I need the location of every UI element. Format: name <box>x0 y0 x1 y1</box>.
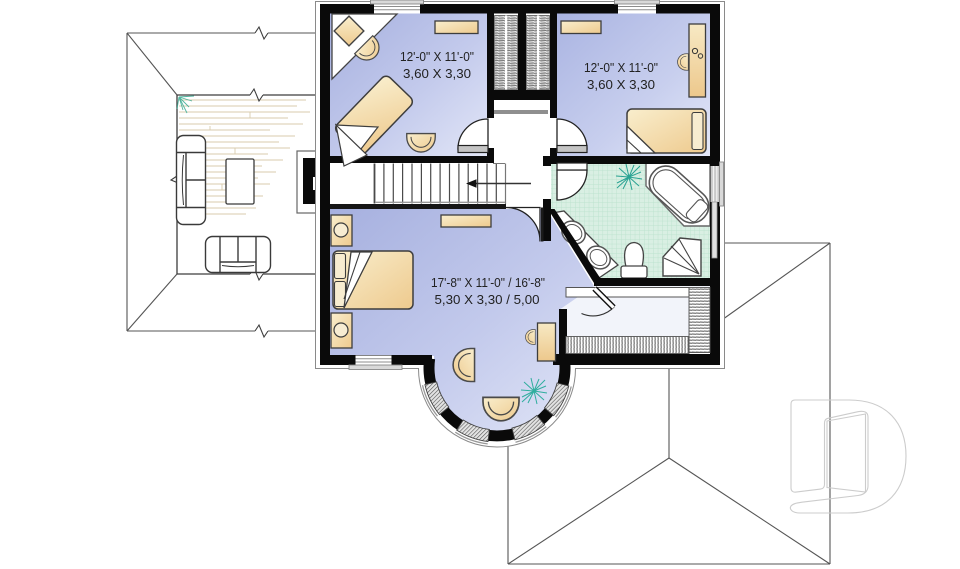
svg-text:5,30 X 3,30 / 5,00: 5,30 X 3,30 / 5,00 <box>435 292 540 307</box>
svg-text:12'-0" X 11'-0": 12'-0" X 11'-0" <box>584 60 658 75</box>
svg-text:17'-8" X 11'-0" / 16'-8": 17'-8" X 11'-0" / 16'-8" <box>431 275 545 290</box>
svg-text:3,60 X 3,30: 3,60 X 3,30 <box>587 77 655 92</box>
svg-text:3,60 X 3,30: 3,60 X 3,30 <box>403 66 471 81</box>
svg-text:12'-0" X 11'-0": 12'-0" X 11'-0" <box>400 49 474 64</box>
